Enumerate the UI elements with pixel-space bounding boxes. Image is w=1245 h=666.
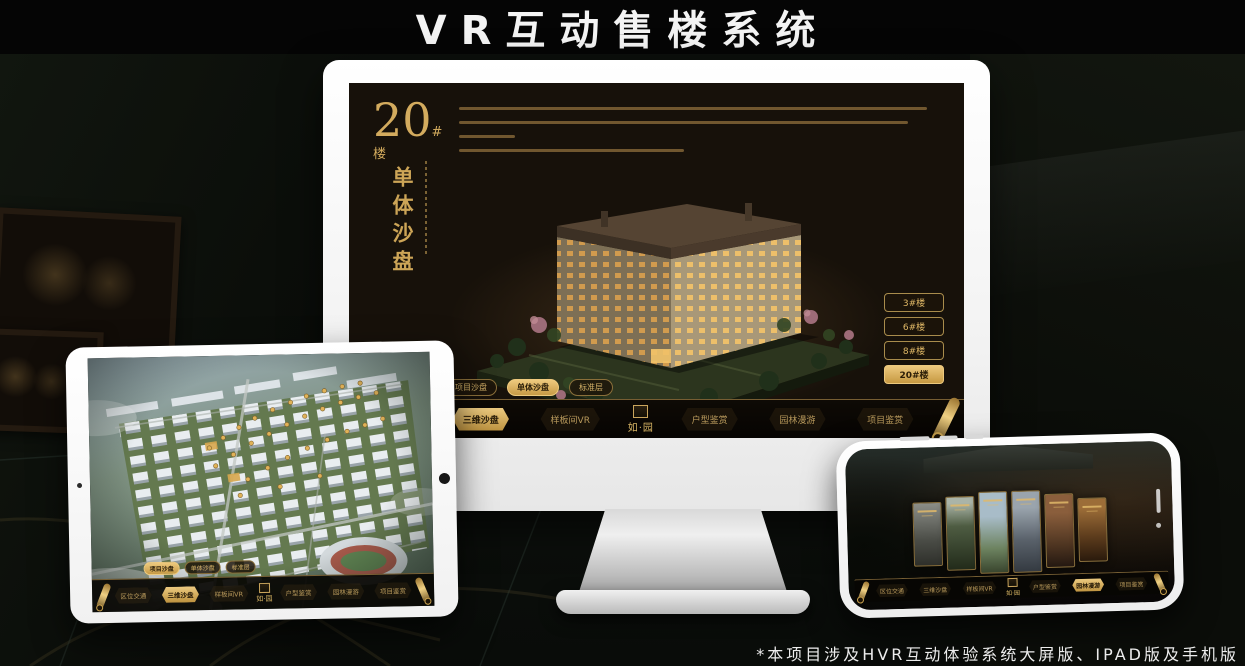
floor-button-group: 3#楼 6#楼 8#楼 20#楼 [884, 293, 944, 384]
gallery-card[interactable] [1077, 497, 1108, 562]
scroll-handle-icon[interactable] [96, 583, 112, 610]
brand-logo[interactable]: 如·园 [628, 405, 654, 434]
footnote: *本项目涉及HVR互动体验系统大屏版、IPAD版及手机版 [756, 641, 1239, 665]
title-bar: VR互动售楼系统 [0, 0, 1245, 54]
gallery-card[interactable] [912, 502, 943, 567]
floor-button-20[interactable]: 20#楼 [884, 365, 944, 384]
nav-item-3d-sandbox[interactable]: 三维沙盘 [449, 408, 513, 431]
page: VR互动售楼系统 20#楼 单体沙盘 [0, 0, 1245, 666]
gallery-card[interactable] [945, 496, 976, 571]
tab-single-sandbox[interactable]: 单体沙盘 [185, 561, 221, 575]
phone-bottom-navbar: 区位交通 三维沙盘 样板间VR 如·园 户型鉴赏 园林漫游 项目鉴赏 [854, 571, 1169, 603]
tab-single-sandbox[interactable]: 单体沙盘 [507, 379, 559, 396]
nav-item-3d-sandbox[interactable]: 三维沙盘 [917, 582, 953, 596]
scene-gallery [912, 488, 1108, 575]
floor-button-3[interactable]: 3#楼 [884, 293, 944, 312]
tab-project-sandbox[interactable]: 项目沙盘 [144, 562, 180, 576]
scroll-handle-icon[interactable] [857, 581, 870, 602]
brand-seal-icon [1008, 577, 1018, 586]
courtyard-roof-silhouette [923, 443, 1093, 474]
phone-volume-button [939, 435, 957, 440]
nav-item-project[interactable]: 项目鉴赏 [372, 582, 414, 599]
nav-item-project[interactable]: 项目鉴赏 [1113, 577, 1149, 591]
brand-seal-icon [633, 405, 648, 418]
floor-button-8[interactable]: 8#楼 [884, 341, 944, 360]
gallery-card[interactable] [1044, 493, 1075, 568]
nav-item-floorplan[interactable]: 户型鉴赏 [1027, 579, 1063, 593]
nav-item-garden-tour[interactable]: 园林漫游 [1070, 578, 1106, 592]
tablet-device: 项目沙盘 单体沙盘 标准层 区位交通 三维沙盘 样板间VR 如·园 户型鉴赏 园… [65, 340, 458, 623]
monitor-stand-neck [578, 509, 788, 595]
brand-logo[interactable]: 如·园 [256, 582, 273, 603]
phone-screen: 区位交通 三维沙盘 样板间VR 如·园 户型鉴赏 园林漫游 项目鉴赏 [845, 440, 1175, 610]
nav-item-floorplan[interactable]: 户型鉴赏 [678, 408, 742, 431]
page-title: VR互动售楼系统 [416, 0, 830, 56]
tablet-home-button [439, 473, 450, 484]
monitor-stand-base [556, 590, 810, 614]
nav-item-floorplan[interactable]: 户型鉴赏 [277, 584, 319, 601]
scroll-handle-icon[interactable] [414, 577, 431, 604]
sandbox-tab-group: 项目沙盘 单体沙盘 标准层 [445, 379, 613, 396]
tablet-bottom-navbar: 区位交通 三维沙盘 样板间VR 如·园 户型鉴赏 园林漫游 项目鉴赏 [92, 573, 435, 613]
nav-item-3d-sandbox[interactable]: 三维沙盘 [159, 586, 201, 603]
tab-standard-floor[interactable]: 标准层 [569, 379, 613, 396]
tablet-screen: 项目沙盘 单体沙盘 标准层 区位交通 三维沙盘 样板间VR 如·园 户型鉴赏 园… [88, 352, 435, 613]
floor-button-6[interactable]: 6#楼 [884, 317, 944, 336]
nav-item-location-traffic[interactable]: 区位交通 [112, 587, 154, 604]
gallery-card[interactable] [1011, 490, 1042, 573]
nav-item-garden-tour[interactable]: 园林漫游 [765, 408, 829, 431]
tablet-sandbox-tab-group: 项目沙盘 单体沙盘 标准层 [144, 560, 256, 575]
nav-item-model-room-vr[interactable]: 样板间VR [537, 408, 604, 431]
phone-device: 区位交通 三维沙盘 样板间VR 如·园 户型鉴赏 园林漫游 项目鉴赏 [836, 432, 1185, 619]
plaque-calligraphy [5, 222, 167, 342]
gallery-card[interactable] [978, 491, 1009, 574]
nav-item-garden-tour[interactable]: 园林漫游 [325, 583, 367, 600]
tab-standard-floor[interactable]: 标准层 [226, 560, 256, 574]
brand-seal-icon [259, 582, 270, 592]
nav-item-model-room-vr[interactable]: 样板间VR [960, 581, 999, 595]
scroll-handle-icon[interactable] [1153, 572, 1167, 593]
phone-volume-button [899, 436, 929, 441]
scroll-handle-icon[interactable] [931, 396, 961, 438]
tablet-camera-icon [77, 483, 82, 488]
phone-camera-dot [1156, 523, 1161, 528]
nav-item-location-traffic[interactable]: 区位交通 [874, 583, 910, 597]
brand-logo[interactable]: 如·园 [1006, 577, 1020, 596]
nav-item-model-room-vr[interactable]: 样板间VR [206, 585, 251, 602]
phone-speaker-slot [1156, 489, 1161, 513]
nav-item-project[interactable]: 项目鉴赏 [853, 408, 917, 431]
phone-power-button [965, 435, 983, 440]
